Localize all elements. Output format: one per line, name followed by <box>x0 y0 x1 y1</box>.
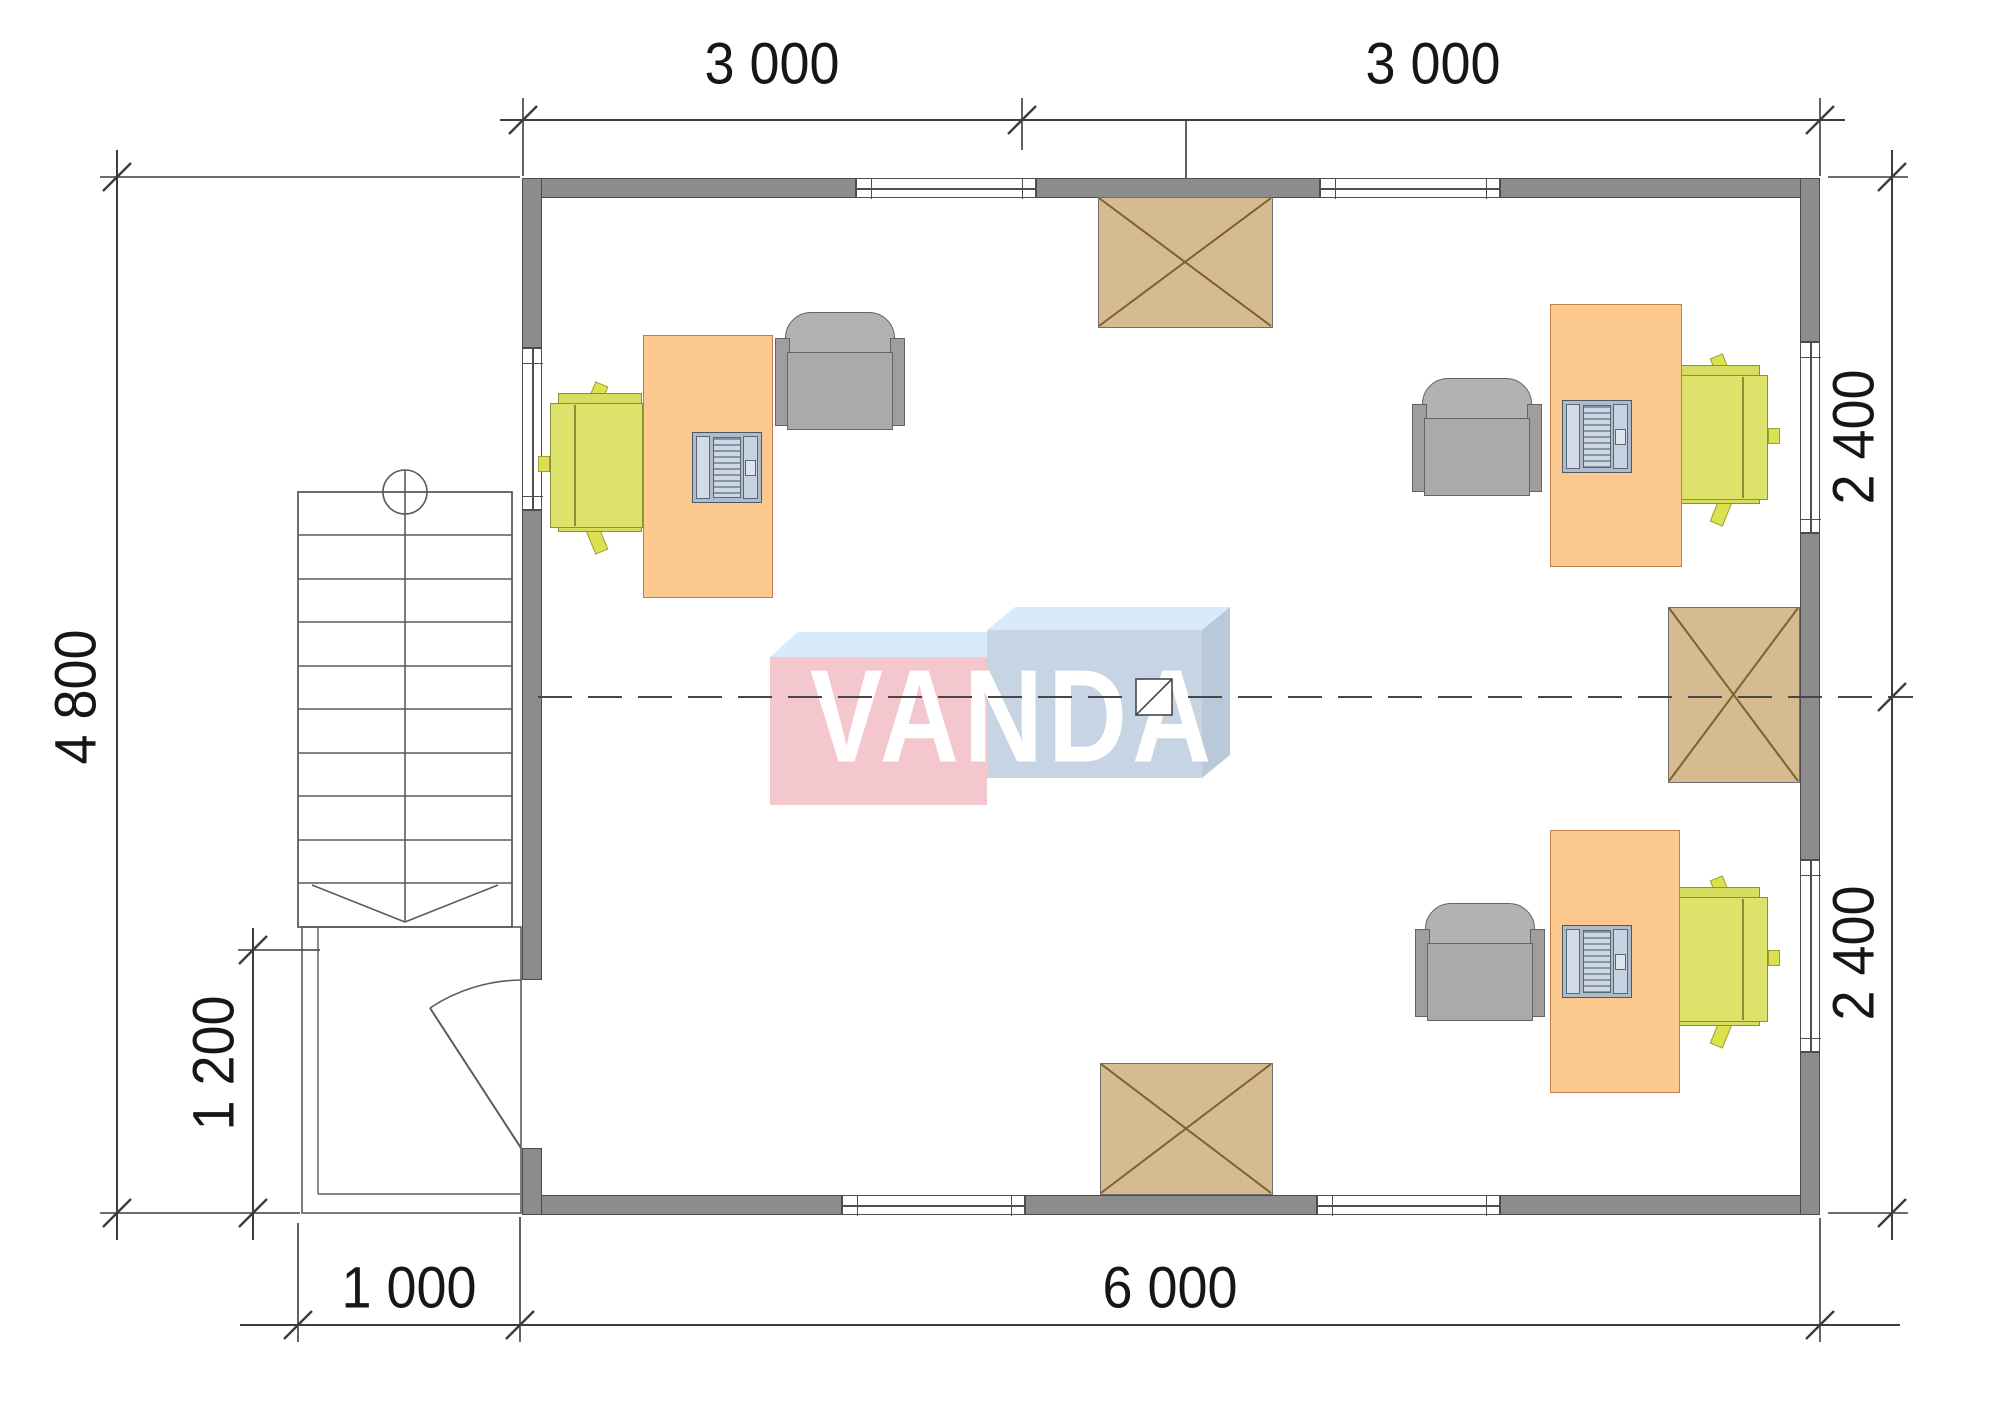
dimension-label-4: 1 200 <box>181 996 248 1131</box>
dimension-label-3: 4 800 <box>43 630 110 765</box>
dimension-label-6: 6 000 <box>1103 1255 1238 1322</box>
dimension-label-1: 3 000 <box>705 31 840 98</box>
dimension-label-7: 2 400 <box>1821 370 1888 505</box>
dimension-label-8: 2 400 <box>1821 886 1888 1021</box>
dimension-label-2: 3 000 <box>1366 31 1501 98</box>
dimension-label-5: 1 000 <box>342 1255 477 1322</box>
floor-plan: VANDA 3 0003 0004 8001 2001 0006 0002 40… <box>0 0 2000 1410</box>
dimension-labels: 3 0003 0004 8001 2001 0006 0002 4002 400 <box>0 0 2000 1410</box>
